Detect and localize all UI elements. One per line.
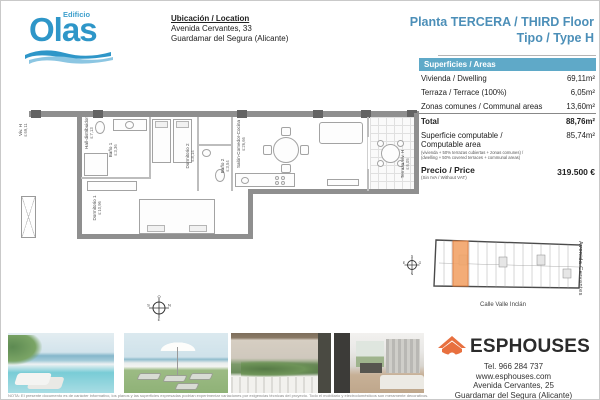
pool-lounger <box>14 373 52 385</box>
plan-heading: Planta TERCERA / THIRD Floor Tipo / Type… <box>334 14 594 46</box>
total-label: Total <box>421 117 439 126</box>
computable-label: Superficie computable / Computable area … <box>421 131 523 160</box>
dining-table-icon <box>273 137 299 163</box>
location-title: Ubicación / Location <box>171 14 288 24</box>
table-row: Terraza / Terrace (100%) 6,05m² <box>419 85 596 99</box>
edificio-olas-logo: Edificio Olas <box>17 5 117 65</box>
svg-text:N: N <box>168 303 171 308</box>
row-label: Zonas comunes / Communal areas <box>421 102 542 111</box>
wave-icon <box>23 49 115 67</box>
photo-pool <box>8 333 114 393</box>
terrace-table-icon <box>381 144 400 163</box>
agency-address1: Avenida Cervantes, 25 <box>431 381 596 391</box>
single-bed-icon <box>152 119 171 163</box>
brochure-page: Edificio Olas Ubicación / Location Aveni… <box>0 0 600 400</box>
kitchen-counter-icon <box>235 173 295 187</box>
svg-text:E: E <box>403 261 406 265</box>
room-label-hall: Hall-distribuidors:7,13 <box>84 101 94 165</box>
agency-tel: Tel. 966 284 737 <box>431 362 596 372</box>
building-key-map <box>431 231 591 301</box>
room-label-bedroom1: Dormitorio 1s:10,96 <box>92 176 102 240</box>
terrace-tiles <box>370 117 414 189</box>
heading-floor: Planta TERCERA / THIRD Floor <box>334 14 594 30</box>
street-label-right: Avenida Cervantes <box>577 241 583 296</box>
price-value: 319.500 € <box>557 165 595 180</box>
shower-icon <box>84 153 108 176</box>
highlighted-unit <box>453 241 468 286</box>
room-label-bedroom2: Dormitorio 2s:8,14 <box>185 124 195 188</box>
location-block: Ubicación / Location Avenida Cervantes, … <box>171 14 288 44</box>
room-label-living: Salón-Comedor-Cocinas:26,66 <box>236 112 246 176</box>
svg-text:O: O <box>157 295 160 299</box>
table-top-rule <box>438 55 596 56</box>
sink-icon <box>125 121 134 129</box>
sofa-icon <box>319 122 363 144</box>
price-note: (Sin IVA / Without VAT) <box>421 175 475 180</box>
esphouses-house-icon <box>437 335 467 359</box>
price-row: Precio / Price (Sin IVA / Without VAT) 3… <box>419 165 596 180</box>
street-label-bottom: Calle Valle Inclán <box>453 302 553 308</box>
location-line1: Avenida Cervantes, 33 <box>171 24 288 34</box>
toilet-icon <box>215 169 225 182</box>
wardrobe-icon <box>87 181 137 191</box>
svg-text:S: S <box>411 255 414 258</box>
table-row: Vivienda / Dwelling 69,11m² <box>419 71 596 85</box>
umbrella-icon <box>158 341 198 351</box>
balcony-column <box>318 333 331 393</box>
room-label-unit: Viv. Hs:69,11 <box>18 98 28 162</box>
computable-note: (vivienda + 50% terrazas cubiertas + zon… <box>421 150 523 160</box>
total-value: 88,76m² <box>566 117 595 126</box>
photo-balcony <box>231 333 331 393</box>
svg-text:E: E <box>158 317 161 321</box>
location-line2: Guardamar del Segura (Alicante) <box>171 34 288 44</box>
room-label-terrace: Terraza Viv. Hs:6,05 <box>400 132 410 196</box>
toilet-icon <box>95 121 105 134</box>
bath1-counter-icon <box>113 119 147 131</box>
balcony-railing <box>231 377 331 393</box>
heading-type: Tipo / Type H <box>334 30 594 46</box>
table-row: Zonas comunes / Communal areas 13,60m² <box>419 99 596 113</box>
agency-block: ESPHOUSES Tel. 966 284 737 www.esphouses… <box>431 335 596 400</box>
row-value: 69,11m² <box>567 74 595 83</box>
legal-disclaimer: NOTA: El presente documento es de caráct… <box>8 394 594 399</box>
kitchen-sink-icon <box>241 177 249 184</box>
room-label-bath1: Baño 1s:3,36 <box>108 118 118 182</box>
plant-decor <box>241 361 321 377</box>
computable-value: 85,74m² <box>566 131 595 160</box>
logo-olas-text: Olas <box>29 11 97 49</box>
single-bed-icon <box>173 119 192 163</box>
sink-icon <box>202 149 211 157</box>
row-label: Terraza / Terrace (100%) <box>421 88 507 97</box>
table-row-total: Total 88,76m² <box>419 113 596 128</box>
compass-icon: O E S N <box>147 295 171 321</box>
row-value: 13,60m² <box>566 102 595 111</box>
compass-icon: S N E O <box>403 255 421 275</box>
plant-decor <box>8 335 42 365</box>
svg-text:S: S <box>147 303 150 308</box>
row-value: 6,05m² <box>571 88 595 97</box>
row-label: Vivienda / Dwelling <box>421 74 487 83</box>
computable-row: Superficie computable / Computable area … <box>419 128 596 160</box>
svg-text:O: O <box>419 261 421 265</box>
tv-unit-icon <box>327 179 359 186</box>
price-label: Precio / Price (Sin IVA / Without VAT) <box>421 165 475 180</box>
areas-table: Superficies / Areas Vivienda / Dwelling … <box>419 55 596 160</box>
agency-name: ESPHOUSES <box>470 336 590 358</box>
photo-interior <box>334 333 424 393</box>
double-bed-icon <box>139 199 215 234</box>
agency-web[interactable]: www.esphouses.com <box>431 372 596 382</box>
svg-text:N: N <box>411 272 414 275</box>
photo-rooftop-terrace <box>124 333 228 393</box>
areas-table-header: Superficies / Areas <box>419 58 596 71</box>
room-label-bath2: Baño 2s:3,54 <box>220 134 230 198</box>
